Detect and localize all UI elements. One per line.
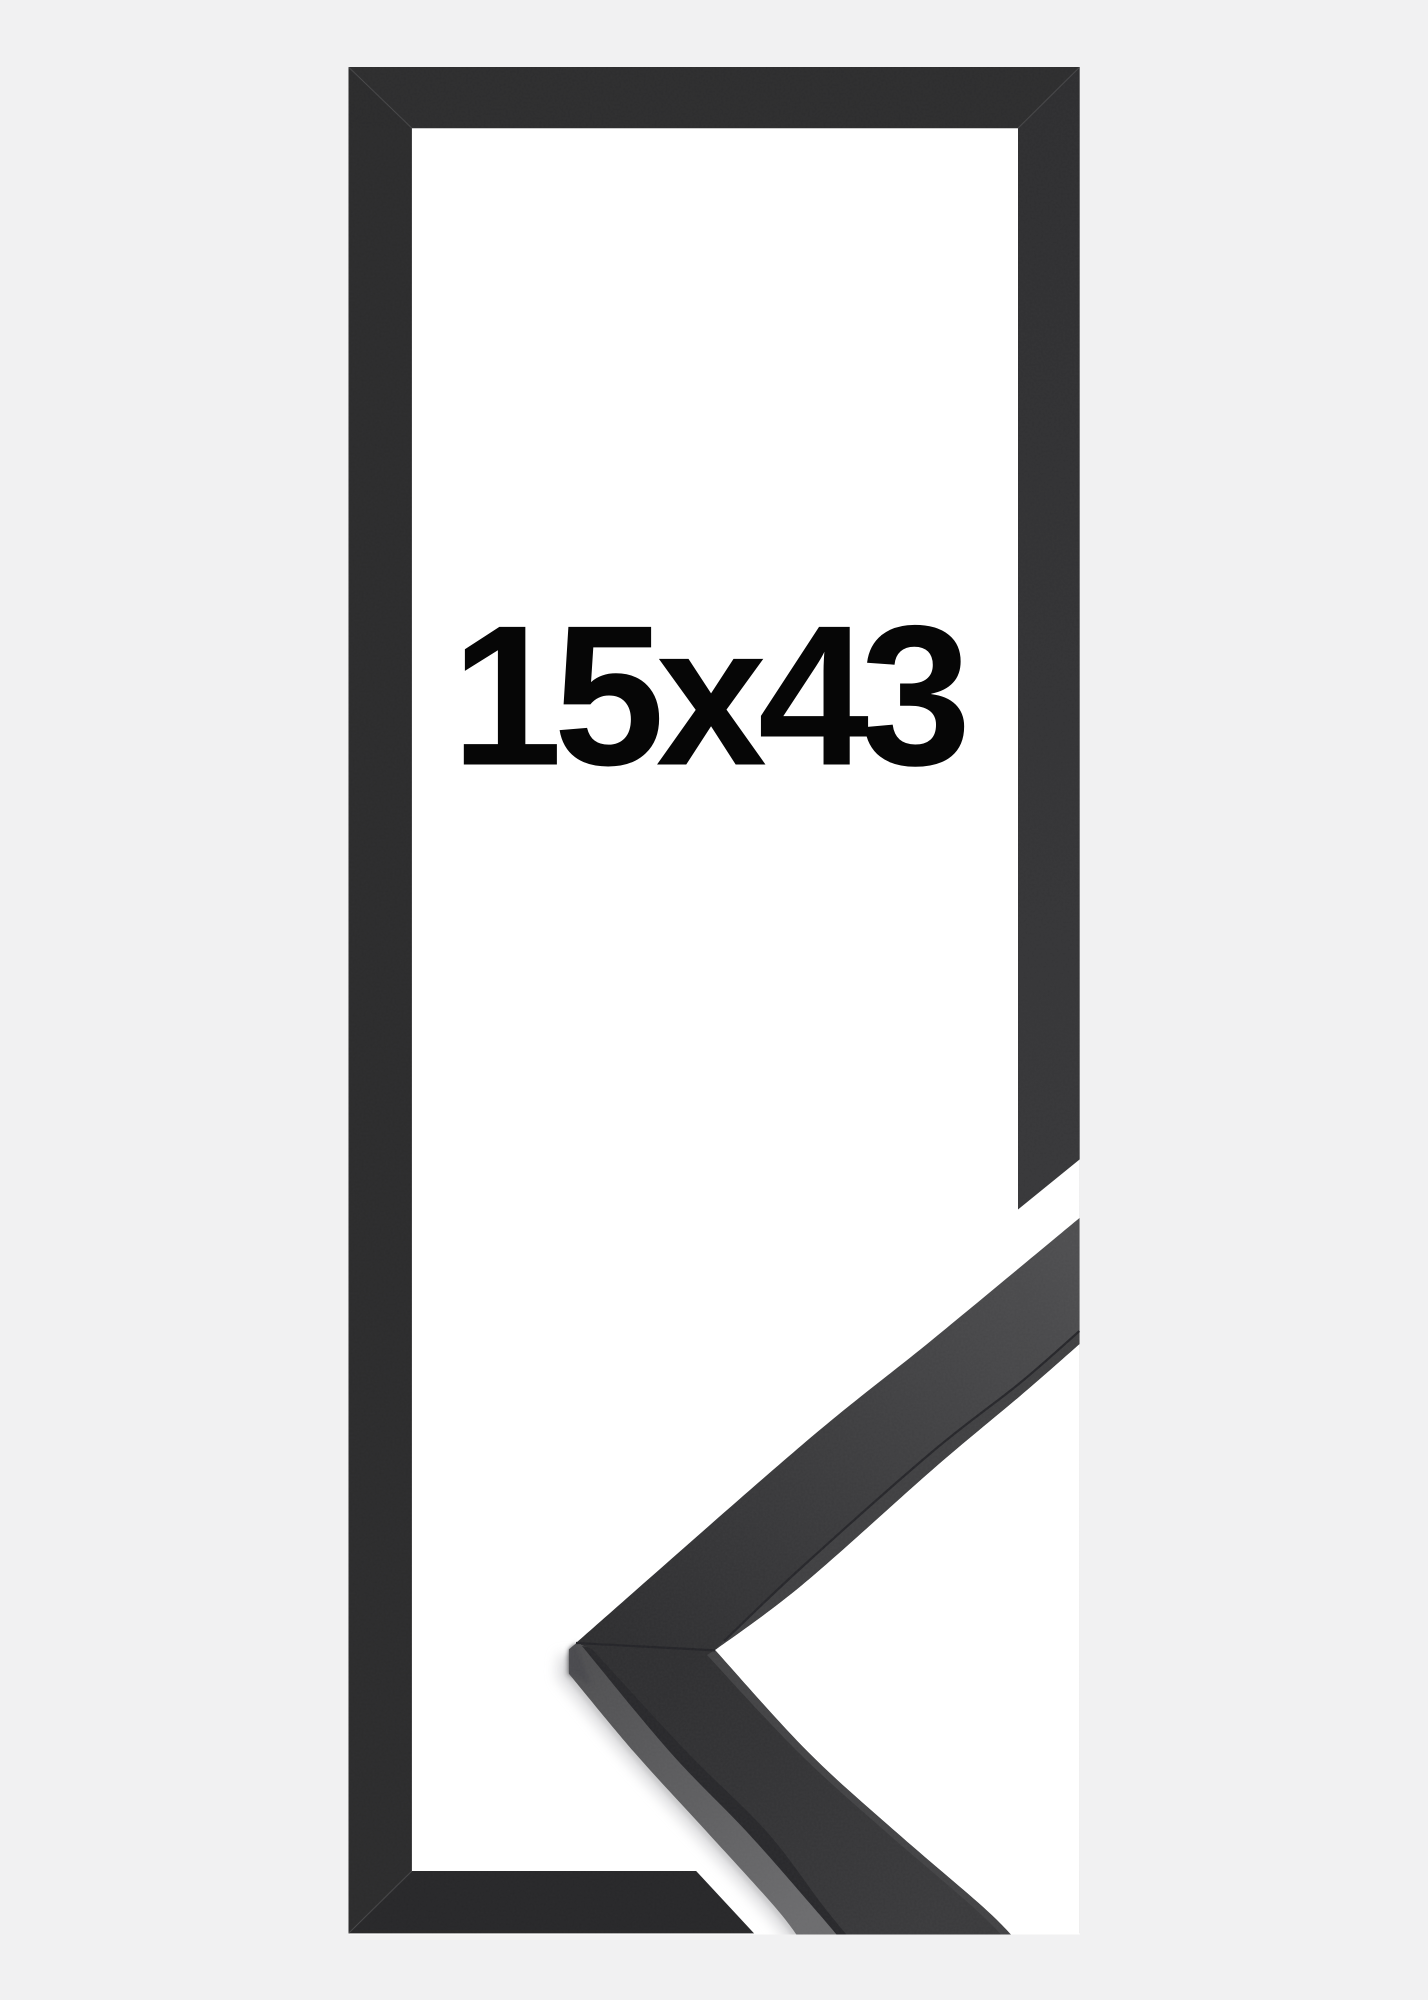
svg-text:15x43: 15x43	[451, 585, 964, 808]
